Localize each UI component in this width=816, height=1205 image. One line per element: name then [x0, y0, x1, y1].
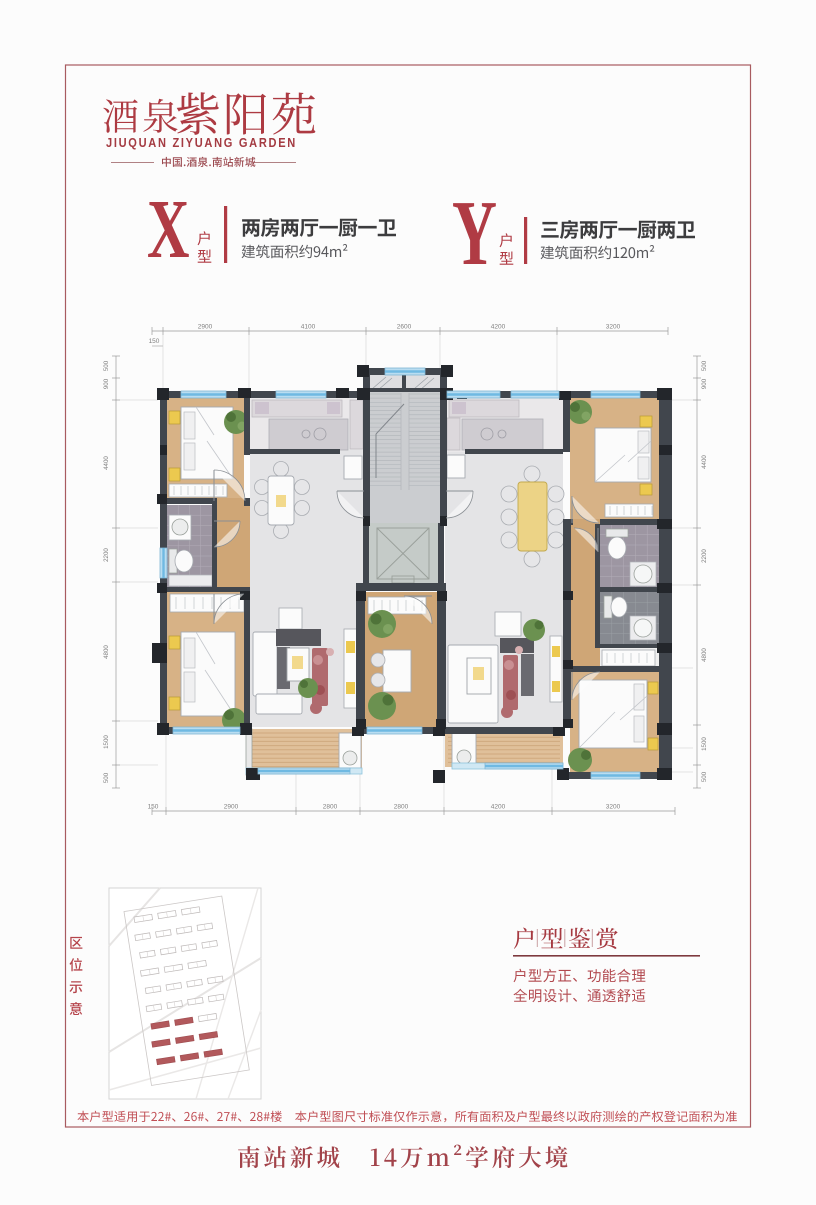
svg-text:2800: 2800 [394, 804, 409, 811]
svg-text:4800: 4800 [701, 648, 708, 662]
svg-text:900: 900 [103, 378, 110, 389]
svg-text:2900: 2900 [198, 324, 213, 331]
svg-text:150: 150 [148, 804, 159, 811]
svg-text:4800: 4800 [103, 645, 110, 659]
svg-text:500: 500 [701, 360, 708, 371]
svg-text:2200: 2200 [701, 549, 708, 563]
svg-text:JIUQUAN ZIYUANG GARDEN: JIUQUAN ZIYUANG GARDEN [106, 135, 297, 150]
svg-text:4100: 4100 [301, 324, 316, 331]
svg-text:1500: 1500 [103, 735, 110, 749]
svg-text:4400: 4400 [701, 455, 708, 469]
svg-text:500: 500 [103, 360, 110, 371]
svg-text:3200: 3200 [606, 324, 621, 331]
svg-text:2600: 2600 [397, 324, 412, 331]
svg-text:4400: 4400 [103, 456, 110, 470]
svg-text:3200: 3200 [606, 804, 621, 811]
svg-text:4200: 4200 [491, 324, 506, 331]
svg-text:150: 150 [149, 338, 160, 345]
svg-text:4200: 4200 [491, 804, 506, 811]
svg-text:500: 500 [701, 771, 708, 782]
svg-text:2800: 2800 [323, 804, 338, 811]
svg-text:2200: 2200 [103, 548, 110, 562]
svg-text:900: 900 [701, 378, 708, 389]
svg-text:500: 500 [103, 772, 110, 783]
svg-text:1500: 1500 [701, 737, 708, 751]
svg-text:2900: 2900 [224, 804, 239, 811]
